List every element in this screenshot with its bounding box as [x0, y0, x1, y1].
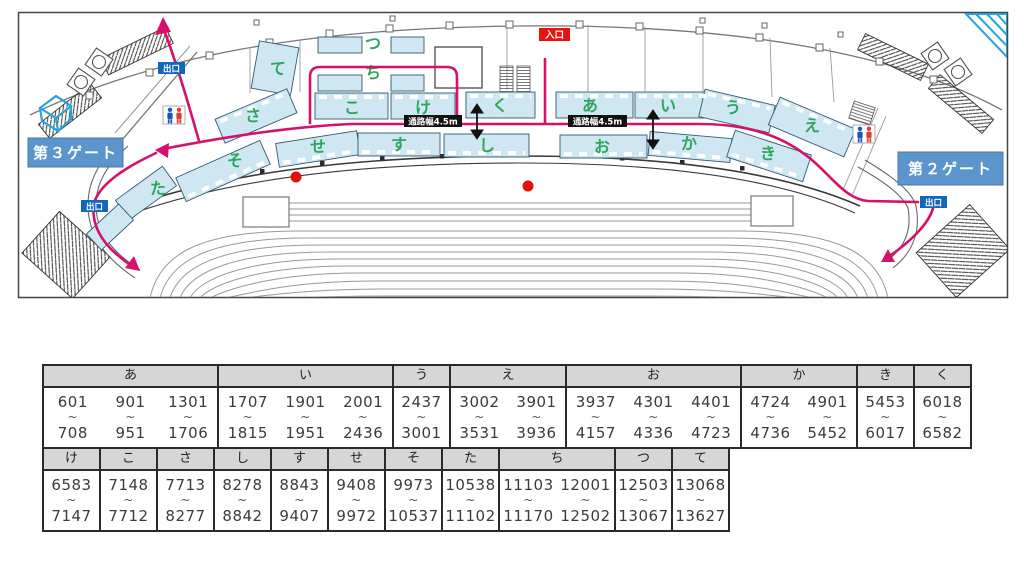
- block-group: あ601~708901~9511301~1706: [42, 364, 219, 449]
- block-group: て13068~13627: [671, 447, 730, 532]
- booth-number-range: 1707~1815: [219, 388, 277, 447]
- map-block-label-tsu: つ: [365, 34, 381, 53]
- block-group: ち11103~1117012001~12502: [498, 447, 616, 532]
- block-group: た10538~11102: [441, 447, 500, 532]
- booth-number-range: 9973~10537: [386, 471, 441, 530]
- map-block-label-ke: け: [415, 98, 431, 117]
- block-group: え3002~35313901~3936: [449, 364, 567, 449]
- booth-number-range: 11103~11170: [500, 471, 557, 530]
- block-group-label: う: [394, 366, 449, 388]
- map-block-label-i: い: [660, 96, 676, 115]
- block-group-label: か: [742, 366, 856, 388]
- block-group-label: さ: [158, 449, 213, 471]
- booth-number-range: 7713~8277: [158, 471, 213, 530]
- block-group: か4724~47364901~5452: [740, 364, 858, 449]
- svg-text:出口: 出口: [925, 198, 942, 209]
- block-group: く6018~6582: [913, 364, 972, 449]
- booth-number-range: 2437~3001: [394, 388, 449, 447]
- block-group-label: け: [44, 449, 99, 471]
- block-group-label: あ: [44, 366, 217, 388]
- block-group: お3937~41574301~43364401~4723: [565, 364, 742, 449]
- booth-number-range: 4401~4723: [682, 388, 740, 447]
- map-block-label-ku: く: [492, 96, 508, 115]
- block-group-label: い: [219, 366, 392, 388]
- booth-number-range: 12001~12502: [557, 471, 614, 530]
- block-group-label: て: [673, 449, 728, 471]
- block-group: い1707~18151901~19512001~2436: [217, 364, 394, 449]
- booth-number-range: 5453~6017: [858, 388, 913, 447]
- block-group: さ7713~8277: [156, 447, 215, 532]
- map-block-label-ta: た: [150, 179, 166, 198]
- red-marker-dot: [291, 172, 302, 183]
- booth-number-range: 4301~4336: [625, 388, 683, 447]
- map-block-label-a: あ: [582, 96, 598, 115]
- map-block-label-ko: こ: [344, 98, 360, 117]
- gate3-label: 第３ゲート: [28, 138, 123, 167]
- booth-number-range: 13068~13627: [673, 471, 728, 530]
- booth-number-range: 7148~7712: [101, 471, 156, 530]
- map-block-label-o: お: [594, 137, 610, 156]
- block-group: つ12503~13067: [614, 447, 673, 532]
- block-group-label: き: [858, 366, 913, 388]
- map-block-label-su: す: [391, 135, 407, 154]
- map-block-label-shi: し: [479, 136, 495, 155]
- table-row-2: け6583~7147こ7148~7712さ7713~8277し8278~8842…: [42, 447, 972, 532]
- booth-number-range: 3937~4157: [567, 388, 625, 447]
- booth-number-range: 4724~4736: [742, 388, 799, 447]
- booth-number-range: 4901~5452: [799, 388, 856, 447]
- booth-number-range: 901~951: [102, 388, 160, 447]
- block-group: け6583~7147: [42, 447, 101, 532]
- svg-text:入口: 入口: [544, 30, 564, 41]
- table-row-1: あ601~708901~9511301~1706い1707~18151901~1…: [42, 364, 972, 449]
- map-block-label-te: て: [270, 59, 286, 78]
- block-group-label: す: [272, 449, 327, 471]
- venue-map-page: て さ つ ち こ け く あ い う え た そ せ す し お か き: [0, 0, 1024, 563]
- map-block-label-u: う: [725, 98, 741, 117]
- block-group-label: た: [443, 449, 498, 471]
- svg-text:第３ゲート: 第３ゲート: [33, 144, 118, 162]
- booth-number-range: 8843~9407: [272, 471, 327, 530]
- block-group: き5453~6017: [856, 364, 915, 449]
- stage-structure-left: [243, 197, 289, 227]
- booth-number-range: 1901~1951: [277, 388, 335, 447]
- booth-number-range: 601~708: [44, 388, 102, 447]
- gate2-label: 第２ゲート: [898, 152, 1003, 185]
- booth-number-range: 2001~2436: [334, 388, 392, 447]
- booth-number-range: 6583~7147: [44, 471, 99, 530]
- map-block-label-se: せ: [310, 137, 326, 156]
- block-group-label: し: [215, 449, 270, 471]
- svg-text:通路幅4.5m: 通路幅4.5m: [573, 117, 623, 128]
- map-block-label-e: え: [804, 116, 820, 135]
- svg-text:出口: 出口: [86, 202, 103, 213]
- block-group-label: そ: [386, 449, 441, 471]
- block-group: せ9408~9972: [327, 447, 386, 532]
- svg-text:通路幅4.5m: 通路幅4.5m: [408, 117, 458, 128]
- map-block-label-so: そ: [227, 151, 243, 170]
- block-group-label: つ: [616, 449, 671, 471]
- booth-number-range: 8278~8842: [215, 471, 270, 530]
- booth-number-range: 9408~9972: [329, 471, 384, 530]
- block-group: す8843~9407: [270, 447, 329, 532]
- venue-floor-map: て さ つ ち こ け く あ い う え た そ せ す し お か き: [0, 0, 1024, 310]
- booth-number-range: 3002~3531: [451, 388, 508, 447]
- booth-number-range: 1301~1706: [159, 388, 217, 447]
- svg-text:第２ゲート: 第２ゲート: [908, 160, 993, 178]
- block-group-label: く: [915, 366, 970, 388]
- entrance-label: 入口: [539, 28, 570, 41]
- block-group-label: せ: [329, 449, 384, 471]
- red-marker-dot: [523, 181, 534, 192]
- block-group: う2437~3001: [392, 364, 451, 449]
- booth-number-range: 3901~3936: [508, 388, 565, 447]
- block-group: こ7148~7712: [99, 447, 158, 532]
- booth-number-range: 12503~13067: [616, 471, 671, 530]
- block-group-label: こ: [101, 449, 156, 471]
- block-group: そ9973~10537: [384, 447, 443, 532]
- booth-number-range: 6018~6582: [915, 388, 970, 447]
- map-block-label-ki: き: [760, 144, 776, 163]
- block-group: し8278~8842: [213, 447, 272, 532]
- block-group-label: え: [451, 366, 565, 388]
- map-block-label-ka: か: [681, 134, 697, 153]
- stage-structure-right: [751, 196, 793, 226]
- map-block-label-sa: さ: [245, 106, 261, 125]
- svg-text:出口: 出口: [163, 64, 180, 75]
- booth-number-range: 10538~11102: [443, 471, 498, 530]
- block-group-label: ち: [500, 449, 614, 471]
- booth-table: あ601~708901~9511301~1706い1707~18151901~1…: [42, 364, 972, 532]
- block-group-label: お: [567, 366, 740, 388]
